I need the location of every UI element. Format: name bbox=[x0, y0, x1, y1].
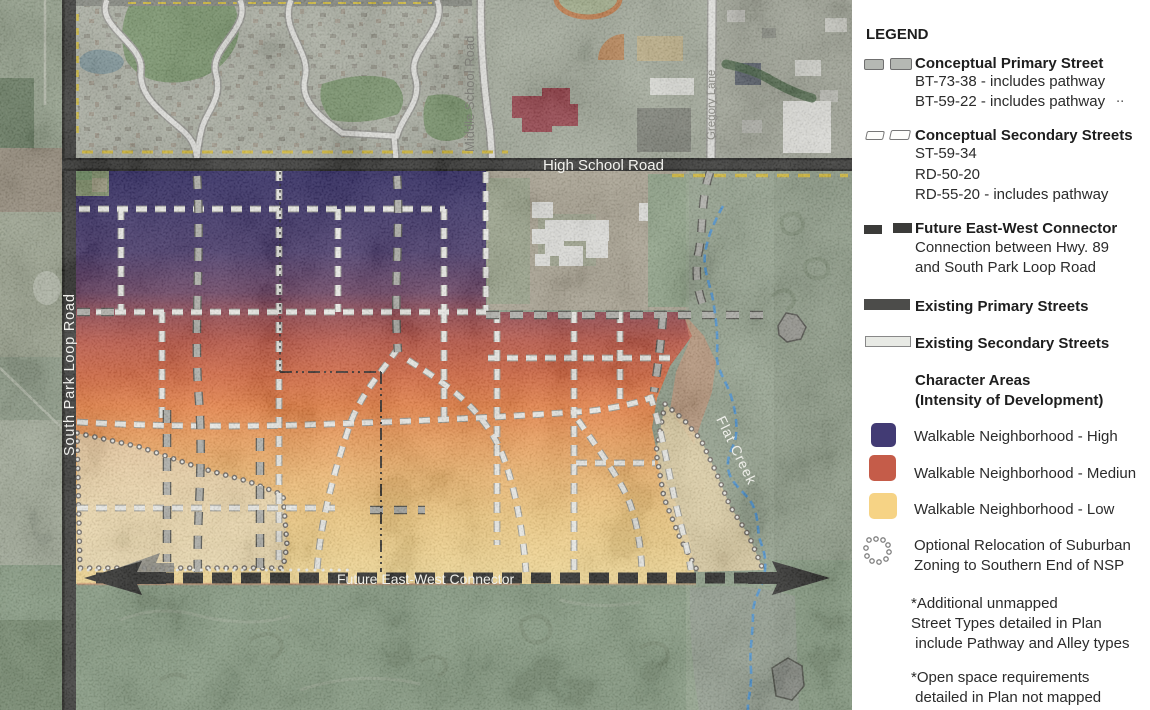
svg-text:Future East-West Connector: Future East-West Connector bbox=[337, 571, 514, 587]
svg-text:Gregory Lane: Gregory Lane bbox=[706, 70, 718, 140]
svg-text:South Park Loop Road: South Park Loop Road bbox=[62, 293, 78, 456]
svg-text:Middle School Road: Middle School Road bbox=[462, 36, 477, 152]
svg-text:High School Road: High School Road bbox=[543, 157, 664, 174]
